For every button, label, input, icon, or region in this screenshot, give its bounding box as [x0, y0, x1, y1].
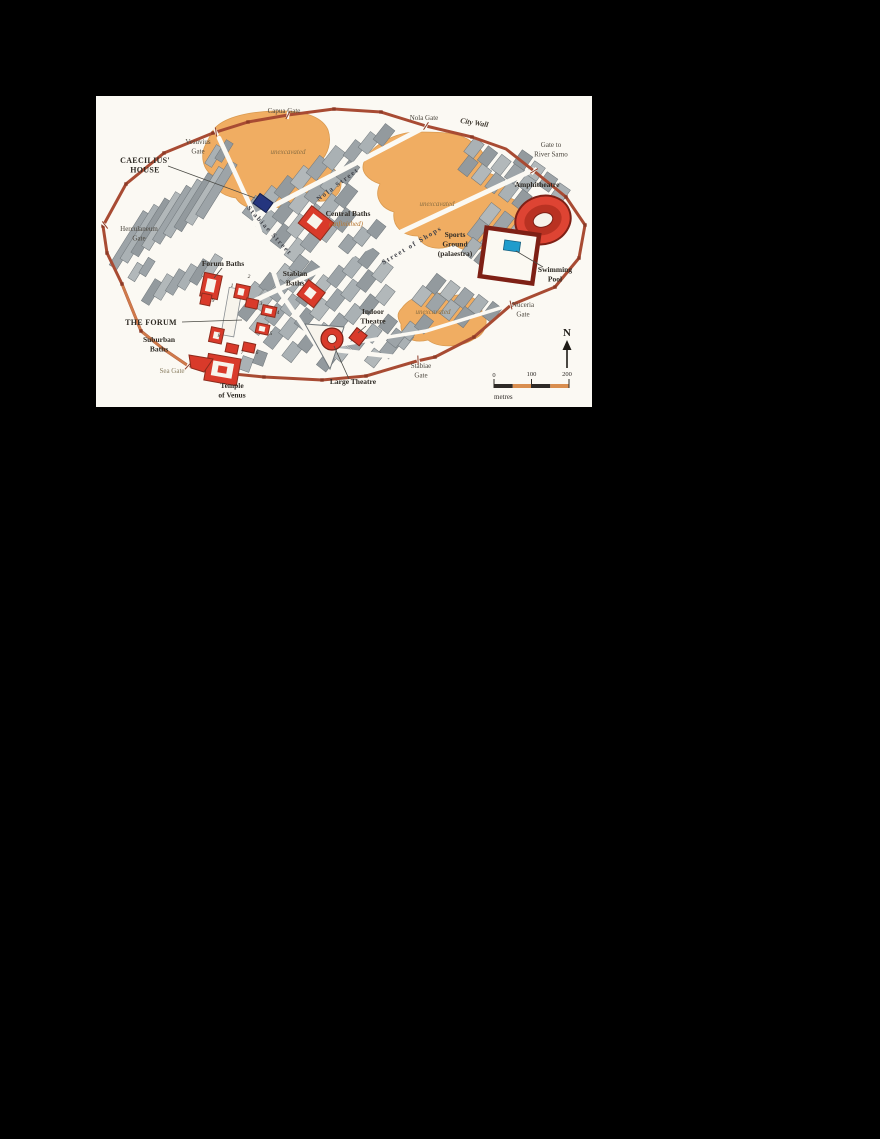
- forum-number-2: 2: [248, 274, 251, 280]
- wall-tower: [564, 195, 567, 198]
- forum-building-8: [208, 327, 224, 344]
- forum-number-8: 8: [218, 333, 221, 339]
- label-city-wall: City Wall: [460, 116, 490, 129]
- wall-tower: [139, 329, 142, 332]
- forum-number-6: 6: [256, 350, 259, 356]
- label-capua-gate: Capua Gate: [268, 107, 301, 115]
- forum-building-6: [242, 342, 256, 353]
- label-unexcavated-centre: unexcavated: [420, 200, 455, 208]
- wall-tower: [320, 378, 323, 381]
- scale-segment: [513, 384, 532, 388]
- label-nuceria-gate: NuceriaGate: [512, 301, 535, 319]
- forum-number-3: 3: [259, 301, 263, 307]
- palaestra-outline: [480, 228, 539, 284]
- label-amphitheatre: Amphitheatre: [515, 180, 561, 189]
- wall-tower: [105, 251, 108, 254]
- large-theatre-orchestra: [328, 335, 337, 344]
- label-suburban-baths: SuburbanBaths: [143, 335, 176, 354]
- forum-number-7: 7: [241, 350, 244, 356]
- pompeii-map: Capua GateNola GateCity WallGate toRiver…: [96, 96, 592, 407]
- label-unexcavated-south: unexcavated: [416, 308, 451, 316]
- forum-building-4: [261, 305, 277, 318]
- wall-tower: [332, 107, 335, 110]
- wall-tower: [553, 285, 556, 288]
- label-unexcavated-nw: unexcavated: [271, 148, 306, 156]
- wall-tower: [433, 355, 436, 358]
- page-background: { "page": { "background": "#000000" }, "…: [0, 0, 880, 1139]
- forum-building-3: [245, 298, 259, 309]
- label-central-baths-note: (unfinished): [329, 220, 363, 228]
- wall-tower: [583, 223, 586, 226]
- forum-number-4: 4: [277, 309, 280, 316]
- label-temple-of-venus: Templeof Venus: [218, 381, 245, 400]
- north-label: N: [563, 327, 571, 339]
- label-indoor-theatre: IndoorTheatre: [360, 307, 386, 326]
- forum-building-5: [255, 323, 270, 335]
- wall-tower: [577, 256, 580, 259]
- scale-segment: [494, 384, 513, 388]
- forum-number-9: 9: [212, 298, 215, 304]
- swimming-pool-marker: [503, 240, 520, 252]
- scale-label-100: 100: [527, 371, 537, 378]
- scale-segment: [550, 384, 569, 388]
- wall-tower: [124, 182, 127, 185]
- wall-tower: [246, 120, 249, 123]
- forum-building-7: [225, 343, 239, 354]
- wall-tower: [162, 151, 165, 154]
- label-nola-gate: Nola Gate: [410, 114, 439, 122]
- scale-segment: [532, 384, 551, 388]
- scale-label-0: 0: [492, 372, 495, 379]
- scale-label-200: 200: [562, 371, 572, 378]
- city-block: [238, 356, 253, 373]
- forum-number-1: 1: [231, 283, 234, 289]
- label-stabiae-gate: StabiaeGate: [411, 362, 432, 380]
- label-large-theatre: Large Theatre: [330, 377, 377, 386]
- forum-number-5: 5: [270, 331, 273, 337]
- label-gate-to-river-sarno: Gate toRiver Sarno: [534, 141, 568, 159]
- label-sea-gate: Sea Gate: [159, 367, 184, 375]
- label-forum-baths: Forum Baths: [202, 259, 244, 268]
- forum-building-9: [200, 293, 212, 306]
- scale-bar: 0 100 200 metres: [492, 371, 572, 401]
- wall-tower: [262, 375, 265, 378]
- label-central-baths: Central Baths: [326, 209, 371, 218]
- wall-tower: [379, 110, 382, 113]
- label-caecilius-house: CAECILIUS'HOUSE: [120, 156, 170, 175]
- wall-tower: [120, 282, 123, 285]
- wall-tower: [472, 335, 475, 338]
- wall-tower: [211, 131, 214, 134]
- label-the-forum: THE FORUM: [125, 318, 177, 327]
- pompeii-map-card: Capua GateNola GateCity WallGate toRiver…: [96, 96, 592, 407]
- wall-tower: [470, 135, 473, 138]
- scale-unit-label: metres: [494, 393, 513, 401]
- north-arrow: N: [563, 327, 572, 368]
